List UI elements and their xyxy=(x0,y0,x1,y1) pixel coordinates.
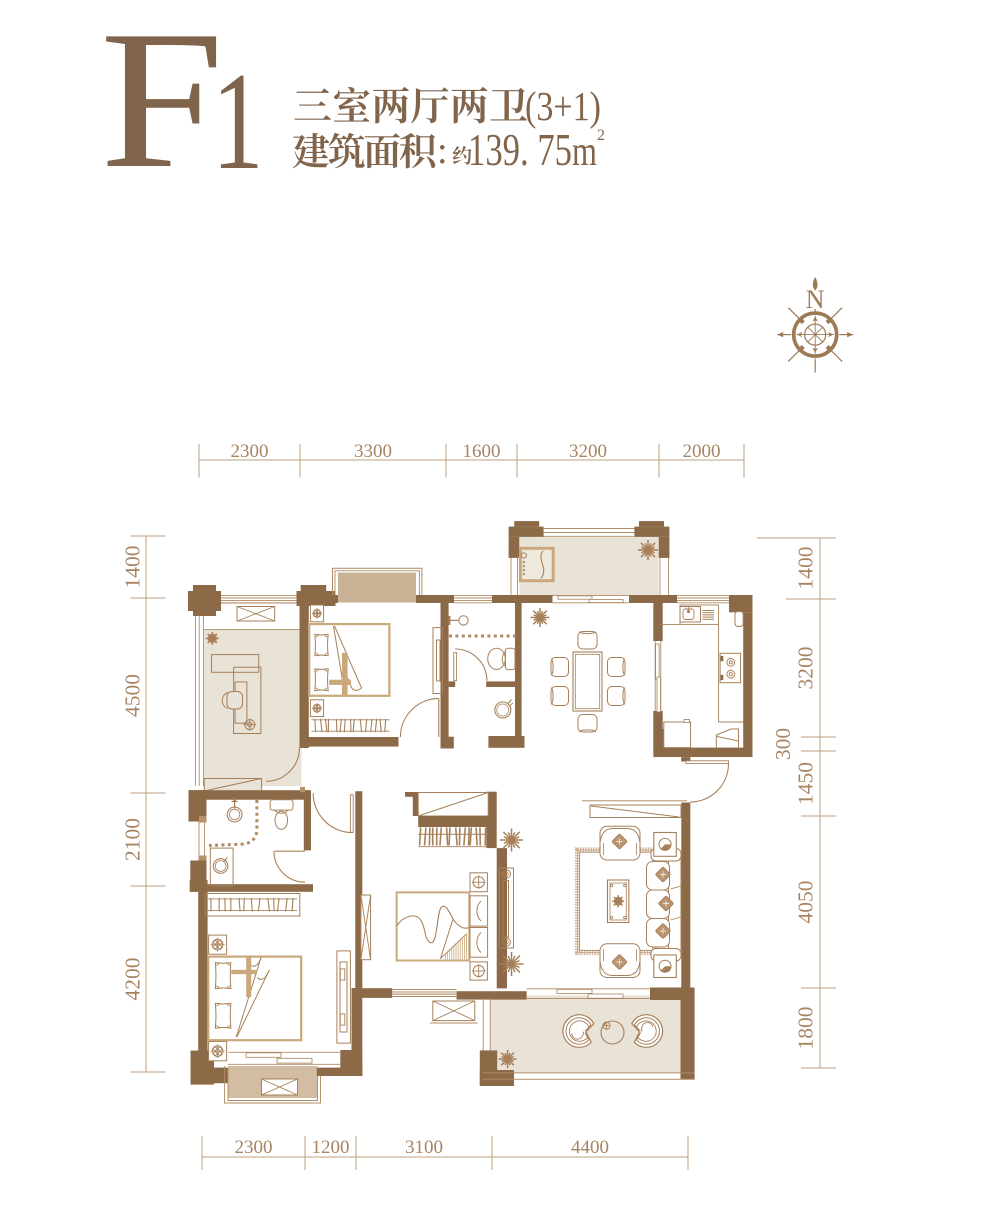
svg-text:(3+1): (3+1) xyxy=(525,83,601,129)
svg-text:2300: 2300 xyxy=(231,441,269,462)
svg-text:1200: 1200 xyxy=(312,1137,350,1158)
svg-text:1800: 1800 xyxy=(794,1007,818,1050)
svg-text:1400: 1400 xyxy=(794,547,818,590)
svg-text:F: F xyxy=(100,0,224,209)
svg-text:3300: 3300 xyxy=(354,441,392,462)
svg-text:300: 300 xyxy=(771,728,795,760)
svg-text:2000: 2000 xyxy=(683,441,721,462)
svg-text:4500: 4500 xyxy=(121,674,145,717)
svg-text:1600: 1600 xyxy=(463,441,501,462)
svg-text:2: 2 xyxy=(597,127,605,144)
svg-text:139. 75: 139. 75 xyxy=(468,125,572,175)
svg-text:1: 1 xyxy=(212,43,264,199)
svg-text:4050: 4050 xyxy=(794,881,818,924)
svg-text:2100: 2100 xyxy=(121,818,145,861)
svg-text::: : xyxy=(437,130,448,172)
svg-text:4400: 4400 xyxy=(571,1137,609,1158)
svg-text:2300: 2300 xyxy=(235,1137,273,1158)
svg-text:3200: 3200 xyxy=(569,441,607,462)
svg-text:4200: 4200 xyxy=(121,958,145,1001)
svg-text:3100: 3100 xyxy=(405,1137,443,1158)
svg-text:1400: 1400 xyxy=(121,546,145,589)
svg-text:3200: 3200 xyxy=(794,647,818,690)
svg-text:m: m xyxy=(572,129,597,175)
svg-text:1450: 1450 xyxy=(794,762,818,805)
